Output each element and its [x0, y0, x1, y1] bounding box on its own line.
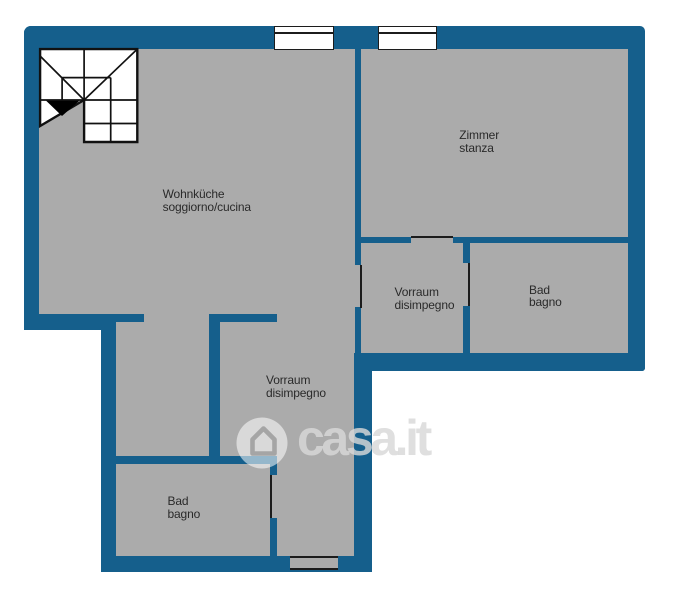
svg-text:casa.it: casa.it: [297, 410, 433, 466]
